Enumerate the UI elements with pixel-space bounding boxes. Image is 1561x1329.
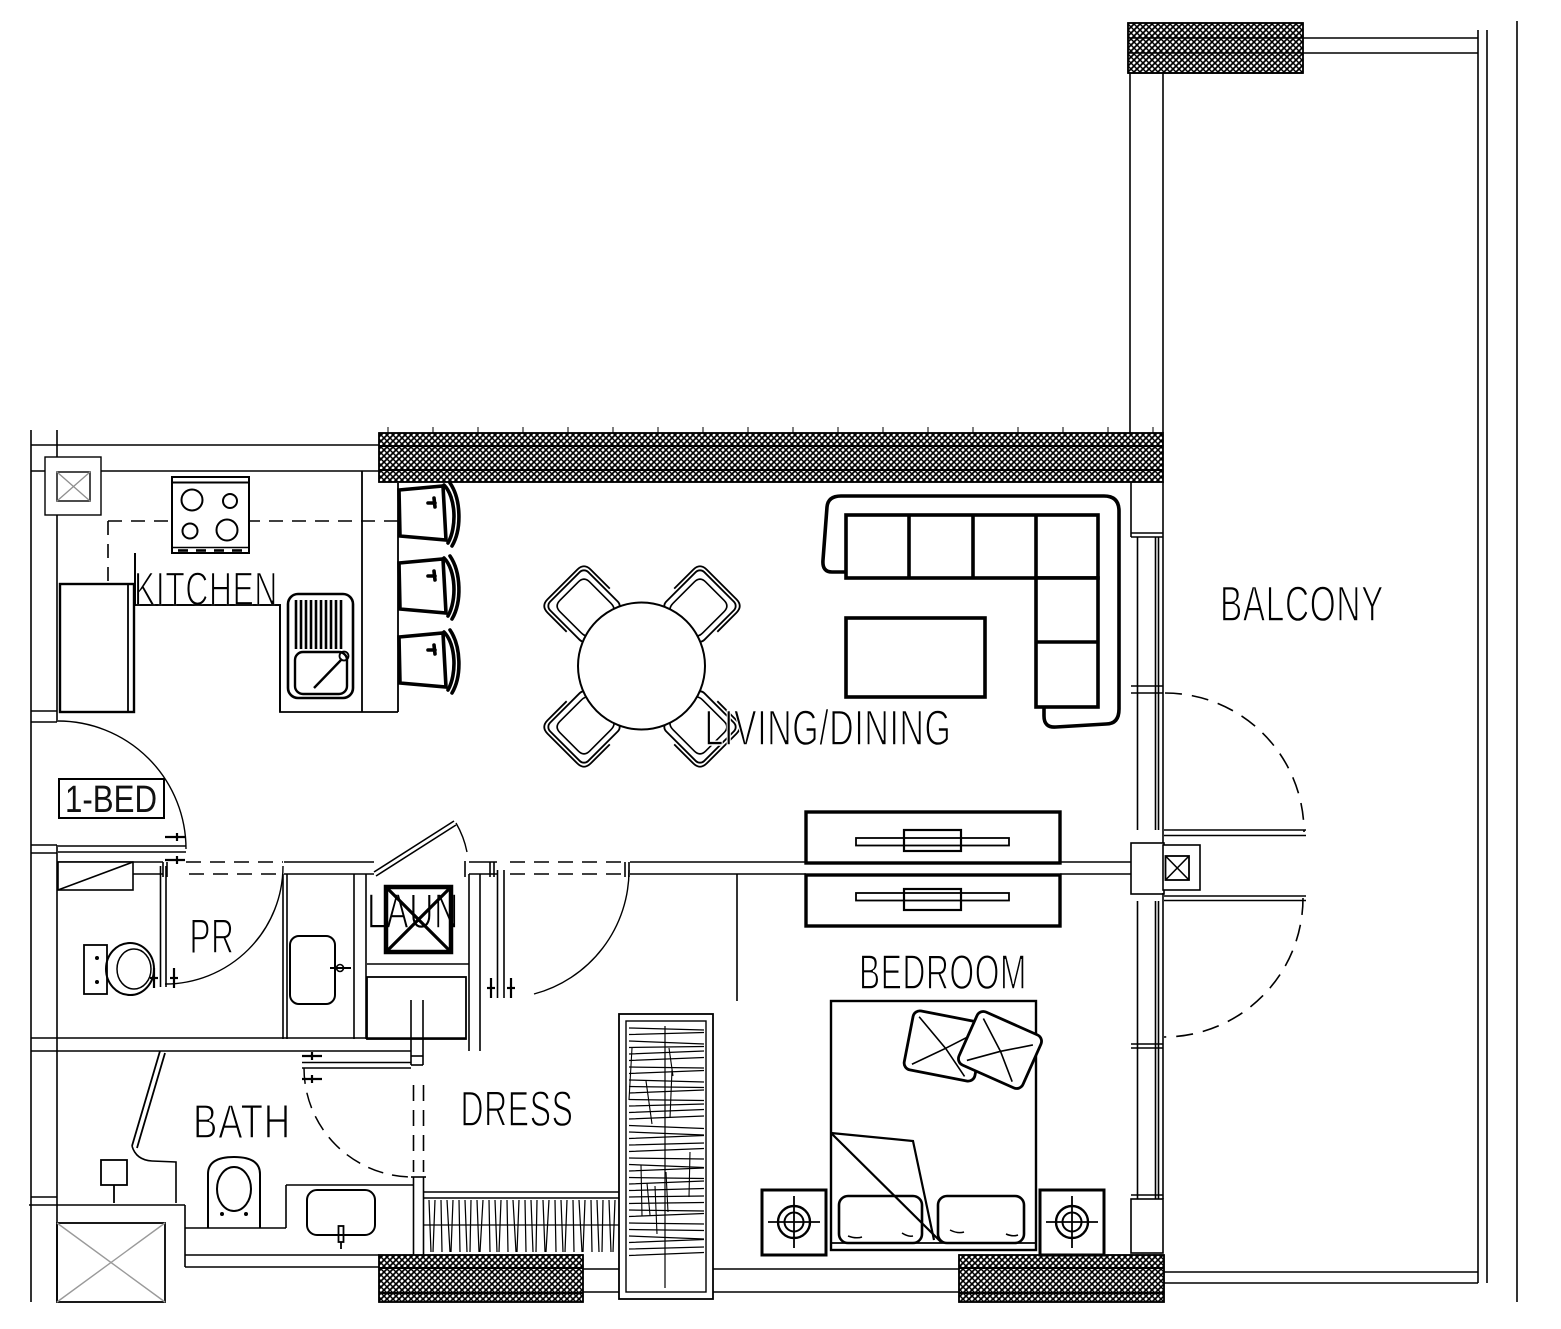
- svg-text:1-BED: 1-BED: [65, 779, 157, 821]
- svg-text:BALCONY: BALCONY: [1220, 576, 1384, 632]
- svg-text:BATH: BATH: [193, 1096, 291, 1149]
- svg-text:PR: PR: [190, 910, 235, 964]
- svg-text:LIVING/DINING: LIVING/DINING: [705, 700, 952, 756]
- svg-text:DRESS: DRESS: [461, 1081, 574, 1137]
- svg-text:KITCHEN: KITCHEN: [134, 562, 278, 615]
- svg-text:BEDROOM: BEDROOM: [859, 946, 1027, 1000]
